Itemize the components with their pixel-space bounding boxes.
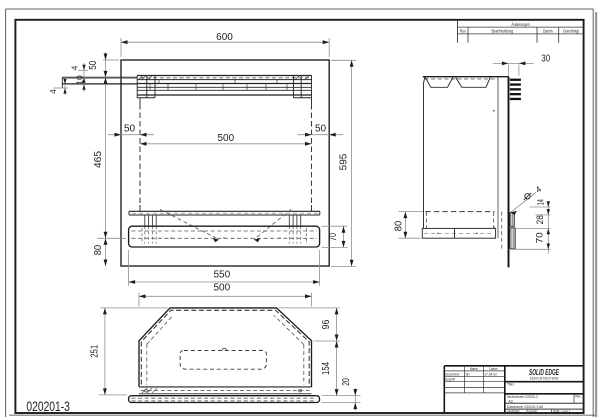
svg-text:4: 4: [70, 65, 80, 70]
svg-text:500: 500: [213, 282, 230, 293]
svg-text:17.04.02: 17.04.02: [484, 372, 497, 376]
svg-text:Gezeichnet: Gezeichnet: [445, 372, 460, 376]
svg-text:600: 600: [216, 32, 233, 43]
svg-text:30: 30: [541, 54, 550, 65]
svg-text:500: 500: [217, 133, 234, 144]
svg-text:14: 14: [535, 199, 545, 205]
svg-text:Datum: Datum: [543, 28, 553, 34]
svg-text:Maßstab:: Maßstab:: [508, 410, 521, 414]
svg-text:A2: A2: [508, 400, 513, 404]
svg-text:50: 50: [124, 124, 136, 135]
svg-text:154: 154: [321, 362, 332, 375]
svg-text:Rev: Rev: [575, 394, 581, 398]
svg-text:20: 20: [341, 378, 352, 386]
svg-text:EDS-PLM SOLUTIONS: EDS-PLM SOLUTIONS: [530, 376, 559, 380]
svg-text:Titel: Titel: [507, 383, 514, 387]
svg-text:251: 251: [90, 344, 101, 357]
svg-text:80: 80: [93, 244, 104, 255]
svg-text:Dateiname: 020201-3.dft: Dateiname: 020201-3.dft: [507, 405, 543, 409]
svg-text:28: 28: [535, 215, 545, 224]
svg-text:bh: bh: [466, 372, 470, 376]
svg-text:Geprüft: Geprüft: [445, 378, 455, 382]
svg-text:595: 595: [339, 153, 350, 170]
svg-text:020201-3: 020201-3: [26, 398, 70, 414]
svg-text:465: 465: [93, 151, 104, 168]
svg-text:Genehmigt: Genehmigt: [563, 28, 579, 34]
svg-text:Sachnummer: 020201-3: Sachnummer: 020201-3: [507, 395, 538, 399]
svg-text:Name: Name: [470, 367, 478, 371]
svg-text:50: 50: [315, 124, 327, 135]
svg-text:70: 70: [328, 233, 339, 241]
svg-text:96: 96: [321, 319, 332, 329]
svg-text:Gewicht:: Gewicht:: [529, 410, 538, 414]
svg-text:80: 80: [393, 220, 404, 231]
svg-text:Rev: Rev: [460, 28, 466, 34]
svg-text:Beschreibung: Beschreibung: [491, 28, 513, 34]
svg-text:10: 10: [75, 75, 85, 85]
svg-text:Datum: Datum: [490, 367, 498, 371]
svg-text:4: 4: [48, 89, 58, 94]
svg-text:50: 50: [88, 60, 99, 69]
svg-text:Blatt 1 von 1: Blatt 1 von 1: [553, 410, 570, 414]
svg-text:70: 70: [534, 232, 544, 243]
svg-text:550: 550: [213, 269, 230, 280]
svg-text:Änderungen: Änderungen: [511, 21, 529, 28]
